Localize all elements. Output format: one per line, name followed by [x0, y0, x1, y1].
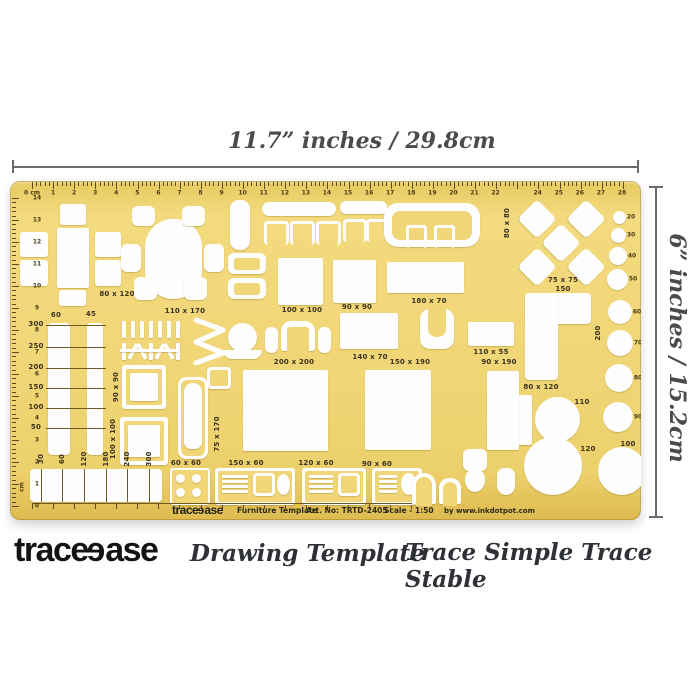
- cutout-counter-line: [379, 490, 397, 493]
- ruler-tick: [12, 273, 16, 274]
- dimension-width-label: 11.7” inches / 29.8cm: [228, 128, 496, 154]
- ruler-tick: [12, 224, 16, 225]
- ruler-tick: [12, 352, 19, 353]
- brand-slogan: Trace Simple Trace Stable: [405, 539, 700, 593]
- ruler-tick: [403, 182, 404, 186]
- top-ruler-number: 11: [260, 190, 268, 197]
- ruler-tick: [467, 182, 468, 186]
- cutout-circle-120: [524, 437, 582, 495]
- top-ruler-number: 6: [156, 190, 160, 197]
- cutout-chair-mark: [122, 321, 126, 338]
- ruler-tick: [12, 277, 16, 278]
- slot-scale-label: 200: [28, 363, 43, 371]
- ruler-tick: [83, 182, 84, 186]
- left-ruler-number: 1: [35, 481, 39, 488]
- ruler-tick: [349, 182, 350, 189]
- ruler-tick: [311, 182, 312, 186]
- ruler-tick: [57, 182, 58, 186]
- size-label: 80 x 120: [99, 290, 134, 298]
- brand-logo: traceease: [14, 531, 157, 570]
- circle-size-label: 20: [627, 214, 635, 221]
- print-credit: by www.inkdotpot.com: [444, 507, 535, 515]
- ruler-tick: [12, 282, 16, 283]
- top-ruler-number: 28: [618, 190, 626, 197]
- ruler-tick: [12, 326, 16, 327]
- cutout-circle-90: [603, 402, 633, 432]
- bottom-scale-label: 30: [37, 454, 45, 464]
- ruler-tick: [597, 182, 598, 186]
- ruler-tick: [40, 182, 41, 186]
- ruler-tick: [576, 182, 577, 186]
- dimension-height-cap-top: [649, 186, 663, 188]
- vertical-size-label: 90 x 90: [112, 372, 120, 402]
- vertical-size-label: 80 x 80: [503, 208, 511, 238]
- cutout-chair: [95, 260, 121, 286]
- cutout-scale-line: [84, 469, 85, 502]
- top-ruler-number: 24: [533, 190, 541, 197]
- cutout-seat: [264, 221, 289, 245]
- cutout-bracket-seat-inner: [234, 258, 260, 270]
- brand-tagline: Drawing Template: [190, 540, 425, 567]
- ruler-tick: [370, 182, 371, 189]
- ruler-tick: [12, 497, 16, 498]
- ruler-tick: [70, 182, 71, 186]
- slot-scale-label: 100: [28, 403, 43, 411]
- ruler-tick: [12, 251, 16, 252]
- vertical-size-label: 200: [594, 325, 602, 340]
- ruler-tick: [12, 317, 16, 318]
- ruler-tick: [543, 182, 544, 186]
- cutout-bidet: [497, 468, 515, 495]
- ruler-tick: [12, 453, 16, 454]
- ruler-tick: [340, 182, 341, 186]
- cutout-counter-line: [309, 480, 333, 483]
- cutout-square-90x90: [333, 260, 376, 303]
- circle-size-label: 30: [627, 232, 635, 239]
- brand-logo-text: trace: [14, 531, 88, 569]
- print-logo-text: trace: [172, 503, 198, 517]
- bottom-scale-label: 300: [145, 451, 153, 466]
- top-ruler-number: 10: [239, 190, 247, 197]
- ruler-tick: [12, 216, 16, 217]
- top-ruler-number: 15: [344, 190, 352, 197]
- cutout-scale-line: [41, 469, 42, 502]
- ruler-tick: [12, 246, 16, 247]
- ruler-tick: [522, 182, 523, 186]
- dimension-width-cap-left: [12, 160, 14, 173]
- ruler-tick: [12, 361, 16, 362]
- ruler-tick: [12, 387, 16, 388]
- circle-size-label: 50: [629, 276, 637, 283]
- cutout-chair: [121, 244, 141, 272]
- ruler-tick: [12, 211, 16, 212]
- cutout-seat: [406, 225, 427, 248]
- ruler-tick: [53, 182, 54, 189]
- ruler-tick: [116, 182, 117, 189]
- ruler-tick: [12, 440, 19, 441]
- print-logo: traceease: [172, 503, 223, 517]
- ruler-tick: [12, 383, 16, 384]
- ruler-tick: [12, 198, 19, 199]
- ruler-tick: [547, 182, 548, 186]
- ruler-tick: [256, 182, 257, 186]
- brand-logo-reversed-e: e: [88, 531, 105, 570]
- print-logo-text: ase: [204, 503, 223, 517]
- print-scale: Scale - 1:50: [384, 506, 434, 515]
- ruler-tick: [12, 286, 19, 287]
- top-ruler-number: 7: [177, 190, 181, 197]
- cutout-counter-line: [379, 475, 397, 478]
- ruler-tick: [378, 182, 379, 186]
- ruler-tick: [12, 255, 16, 256]
- cutout-slot: [48, 323, 70, 455]
- top-ruler-number: 18: [407, 190, 415, 197]
- bottom-scale-label: 120: [80, 451, 88, 466]
- cutout-chair-mark-bar: [120, 349, 178, 352]
- slot-header-label: 60: [51, 311, 61, 319]
- ruler-tick: [479, 182, 480, 186]
- ruler-tick: [298, 182, 299, 186]
- vertical-size-label: 75 x 170: [213, 416, 221, 451]
- ruler-tick: [12, 260, 16, 261]
- cutout-scale-line: [62, 469, 63, 502]
- circle-size-label: 90: [634, 414, 641, 421]
- bottom-scale-label: 60: [58, 454, 66, 464]
- cutout-sink-inner: [341, 476, 357, 493]
- cutout-sink-inner: [256, 476, 272, 493]
- ruler-tick: [159, 182, 160, 189]
- cutout-circle-80: [605, 364, 633, 392]
- cutout-sofa-L: [525, 293, 558, 380]
- ruler-tick: [365, 182, 366, 186]
- top-ruler-number: 22: [491, 190, 499, 197]
- ruler-tick: [319, 182, 320, 186]
- ruler-tick: [129, 182, 130, 186]
- ruler-tick: [12, 427, 16, 428]
- cutout-chair-mark: [131, 321, 135, 338]
- cutout-chair-mark: [176, 321, 180, 338]
- ruler-tick: [247, 182, 248, 186]
- cutout-chair: [95, 232, 121, 257]
- ruler-tick: [78, 182, 79, 186]
- cutout-door-arch-inner: [416, 477, 432, 506]
- ruler-tick: [619, 182, 620, 186]
- ruler-tick: [12, 458, 16, 459]
- cutout-rect-90x190: [487, 371, 519, 450]
- ruler-tick: [197, 182, 198, 186]
- size-label: 180 x 70: [411, 297, 446, 305]
- ruler-tick: [112, 182, 113, 186]
- top-ruler-number: 19: [428, 190, 436, 197]
- circle-size-label: 70: [634, 340, 641, 347]
- ruler-tick: [171, 182, 172, 186]
- ruler-tick: [36, 182, 37, 186]
- cutout-counter-line: [309, 490, 333, 493]
- ruler-tick: [589, 182, 590, 186]
- cutout-square-100x100: [278, 258, 323, 305]
- ruler-tick: [12, 471, 16, 472]
- ruler-tick: [357, 182, 358, 186]
- ruler-tick: [12, 290, 16, 291]
- cutout-circle-100: [598, 447, 641, 495]
- ruler-tick: [12, 444, 16, 445]
- top-ruler-number: 14: [323, 190, 331, 197]
- ruler-tick: [12, 374, 19, 375]
- ruler-tick: [12, 475, 16, 476]
- ruler-tick: [12, 238, 16, 239]
- ruler-tick: [12, 466, 16, 467]
- top-ruler-number: 25: [555, 190, 563, 197]
- ruler-tick: [201, 182, 202, 189]
- cutout-sink-bowl: [277, 474, 290, 495]
- cutout-burner: [176, 488, 185, 497]
- circle-size-label: 60: [633, 309, 641, 316]
- ruler-tick: [555, 182, 556, 186]
- cutout-table-80x120: [57, 228, 89, 288]
- cutout-counter-line: [309, 485, 333, 488]
- ruler-tick: [32, 182, 33, 189]
- size-label: 110 x 55: [473, 348, 508, 356]
- ruler-tick: [91, 182, 92, 186]
- cutout-square-200x200: [243, 370, 328, 451]
- size-label: 140 x 70: [352, 353, 387, 361]
- cutout-scale-line: [46, 388, 106, 389]
- ruler-tick: [572, 182, 573, 186]
- ruler-tick: [12, 242, 19, 243]
- cutout-circle-60: [608, 300, 632, 324]
- ruler-tick: [484, 182, 485, 186]
- slot-scale-label: 150: [28, 383, 43, 391]
- ruler-tick: [361, 182, 362, 186]
- ruler-tick: [585, 182, 586, 186]
- ruler-tick: [441, 182, 442, 186]
- print-logo-reversed-e: e: [198, 503, 204, 517]
- cutout-counter-line: [222, 485, 248, 488]
- ruler-tick: [374, 182, 375, 186]
- slot-scale-label: 250: [28, 342, 43, 350]
- cutout-chair-round: [228, 323, 257, 352]
- cutout-shower-inner: [210, 370, 228, 386]
- ruler-tick: [294, 182, 295, 186]
- top-ruler-number: 26: [576, 190, 584, 197]
- cutout-counter-line: [379, 480, 397, 483]
- ruler-tick: [74, 182, 75, 189]
- ruler-tick: [412, 182, 413, 189]
- ruler-tick: [623, 182, 624, 189]
- ruler-tick: [450, 182, 451, 186]
- ruler-tick: [175, 182, 176, 186]
- ruler-tick: [530, 182, 531, 186]
- ruler-tick: [138, 182, 139, 189]
- cutout-u-shape-inner: [428, 305, 446, 337]
- ruler-tick: [95, 182, 96, 189]
- left-ruler-number: 4: [35, 415, 39, 422]
- vertical-size-label: 100 x 100: [109, 419, 117, 459]
- left-ruler-number: 12: [33, 239, 41, 246]
- ruler-tick: [12, 220, 19, 221]
- cutout-counter-line: [222, 480, 248, 483]
- ruler-tick: [344, 182, 345, 186]
- ruler-tick: [163, 182, 164, 186]
- cutout-chair: [134, 277, 157, 300]
- ruler-tick: [433, 182, 434, 189]
- cutout-seat: [343, 219, 367, 242]
- ruler-tick: [142, 182, 143, 186]
- ruler-tick: [62, 182, 63, 186]
- cutout-sofa-corner: [230, 200, 250, 250]
- left-ruler-number: 5: [35, 393, 39, 400]
- left-ruler-number: 6: [35, 371, 39, 378]
- cutout-scale-line: [46, 408, 106, 409]
- cutout-burner: [176, 474, 185, 483]
- ruler-tick: [285, 182, 286, 189]
- ruler-tick: [146, 182, 147, 186]
- size-label: 75 x 75: [548, 276, 578, 284]
- ruler-tick: [218, 182, 219, 186]
- cutout-sofa-outline-inner: [392, 211, 472, 240]
- cutout-counter-line: [222, 475, 248, 478]
- cutout-scale-line: [46, 347, 106, 348]
- ruler-tick: [87, 182, 88, 186]
- size-label: 120 x 60: [298, 459, 333, 467]
- cutout-counter-line: [222, 490, 248, 493]
- cutout-scale-line: [46, 368, 106, 369]
- cutout-seat: [316, 221, 341, 245]
- cutout-bracket-seat-inner: [234, 283, 260, 295]
- ruler-tick: [327, 182, 328, 189]
- ruler-tick: [192, 182, 193, 186]
- top-ruler-number: 27: [597, 190, 605, 197]
- cutout-slot: [87, 323, 103, 455]
- ruler-tick: [12, 334, 16, 335]
- ruler-tick: [108, 182, 109, 186]
- top-ruler-number: 20: [449, 190, 457, 197]
- ruler-tick: [382, 182, 383, 186]
- top-ruler-number: 12: [281, 190, 289, 197]
- ruler-tick: [209, 182, 210, 186]
- cutout-toilet-bowl: [465, 468, 485, 492]
- ruler-tick: [429, 182, 430, 186]
- top-ruler-number: 3: [93, 190, 97, 197]
- cutout-sofa-back: [340, 201, 387, 214]
- ruler-tick: [125, 182, 126, 186]
- print-strip: traceease Furniture Template Art. No: TR…: [10, 503, 641, 520]
- ruler-tick: [12, 233, 16, 234]
- ruler-tick: [12, 365, 16, 366]
- ruler-tick: [12, 308, 19, 309]
- top-ruler-number: 4: [114, 190, 118, 197]
- ruler-tick: [12, 229, 16, 230]
- ruler-tick: [458, 182, 459, 186]
- cutout-scale-line: [106, 469, 107, 502]
- cutout-rect-150x190: [365, 370, 431, 450]
- cutout-armchair-arm: [265, 327, 278, 353]
- cutout-bathtub-basin: [184, 383, 202, 449]
- cutout-circle-70: [607, 330, 633, 356]
- ruler-tick: [614, 182, 615, 186]
- ruler-tick: [12, 339, 16, 340]
- ruler-tick: [399, 182, 400, 186]
- ruler-tick: [323, 182, 324, 186]
- ruler-tick: [49, 182, 50, 186]
- bottom-scale-label: 240: [123, 451, 131, 466]
- ruler-tick: [12, 462, 19, 463]
- ruler-tick: [12, 330, 19, 331]
- ruler-tick: [239, 182, 240, 186]
- size-label: 80 x 120: [523, 383, 558, 391]
- ruler-tick: [12, 422, 16, 423]
- size-label: 60 x 60: [171, 459, 201, 467]
- cutout-counter-line: [379, 485, 397, 488]
- cutout-sofa-back: [262, 202, 336, 216]
- ruler-tick: [581, 182, 582, 189]
- ruler-tick: [454, 182, 455, 189]
- ruler-tick: [12, 348, 16, 349]
- ruler-tick: [226, 182, 227, 186]
- ruler-tick: [416, 182, 417, 186]
- left-ruler-number: 11: [33, 261, 41, 268]
- cutout-circle-50: [607, 269, 628, 290]
- stencil-template: 0 cm123456789101112131415161718192021222…: [10, 181, 641, 520]
- ruler-tick: [230, 182, 231, 186]
- ruler-tick: [150, 182, 151, 186]
- ruler-tick: [391, 182, 392, 189]
- ruler-tick: [568, 182, 569, 186]
- cutout-rect-180x70: [387, 262, 464, 293]
- ruler-tick: [538, 182, 539, 189]
- ruler-tick: [12, 295, 16, 296]
- cutout-circle-110: [535, 397, 580, 442]
- ruler-tick: [593, 182, 594, 186]
- left-ruler-number: 14: [33, 195, 41, 202]
- ruler-tick: [121, 182, 122, 186]
- cutout-chair-arc: [223, 350, 262, 359]
- size-label: 110 x 170: [165, 307, 205, 315]
- ruler-tick: [517, 182, 518, 189]
- cutout-seat: [434, 225, 455, 248]
- cutout-chair-mark: [167, 321, 171, 338]
- cutout-seat: [290, 221, 315, 245]
- bottom-scale-label: 180: [102, 451, 110, 466]
- dimension-height-cap-bottom: [649, 516, 663, 518]
- ruler-tick: [564, 182, 565, 186]
- ruler-tick: [302, 182, 303, 186]
- ruler-tick: [104, 182, 105, 186]
- ruler-tick: [12, 202, 16, 203]
- ruler-tick: [12, 449, 16, 450]
- ruler-tick: [395, 182, 396, 186]
- cutout-table-100x100-top: [128, 425, 160, 457]
- dimension-width-line: [12, 166, 639, 168]
- ruler-tick: [289, 182, 290, 186]
- cutout-circle-30: [611, 228, 626, 243]
- cutout-chair: [182, 206, 205, 226]
- ruler-tick: [180, 182, 181, 189]
- cutout-chair-mark: [140, 321, 144, 338]
- ruler-tick: [12, 299, 16, 300]
- cutout-chair-mark: [149, 321, 153, 338]
- size-label: 100: [620, 440, 635, 448]
- slot-header-label: 45: [86, 310, 96, 318]
- cutout-scale-line: [46, 325, 106, 326]
- cutout-scale-line: [127, 469, 128, 502]
- ruler-tick: [12, 321, 16, 322]
- cutout-circle-20: [613, 211, 626, 224]
- ruler-tick: [264, 182, 265, 189]
- ruler-tick: [306, 182, 307, 189]
- dimension-height-line: [655, 186, 657, 518]
- ruler-tick: [12, 304, 16, 305]
